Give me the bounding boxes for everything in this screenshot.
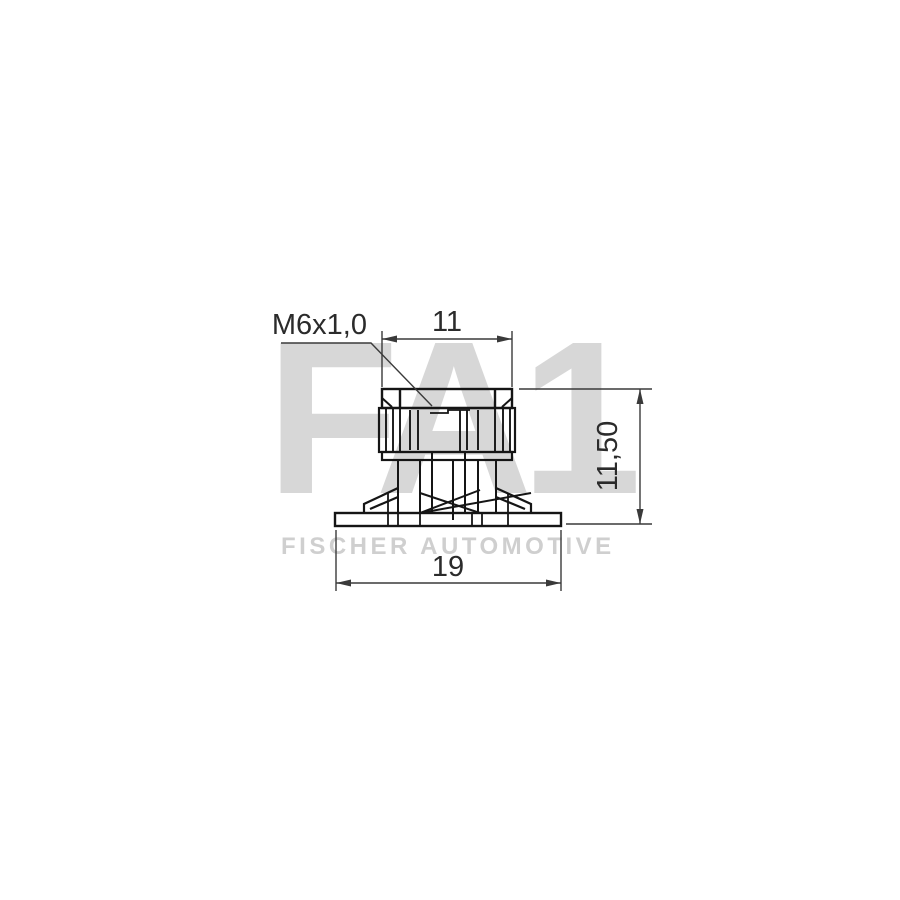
part-drawing-canvas: M6x1,0 11 11,50 19 [0,0,900,900]
dimension-right-height: 11,50 [519,389,652,524]
thread-label: M6x1,0 [272,309,367,341]
bottom-width-label: 19 [432,551,464,583]
right-height-label: 11,50 [592,421,624,491]
drawing-sheet: FA1 FISCHER AUTOMOTIVE [0,0,900,900]
washer-band [379,408,515,460]
top-width-label: 11 [432,306,462,338]
cage-body [398,452,531,520]
hex-nut-top [382,389,512,408]
spring-leg-left [364,488,398,513]
spring-leg-right [496,488,531,513]
part-view [335,389,561,526]
dimension-bottom-width: 19 [336,530,561,591]
flange-base [335,513,561,526]
dimension-thread-callout: M6x1,0 [272,309,432,406]
